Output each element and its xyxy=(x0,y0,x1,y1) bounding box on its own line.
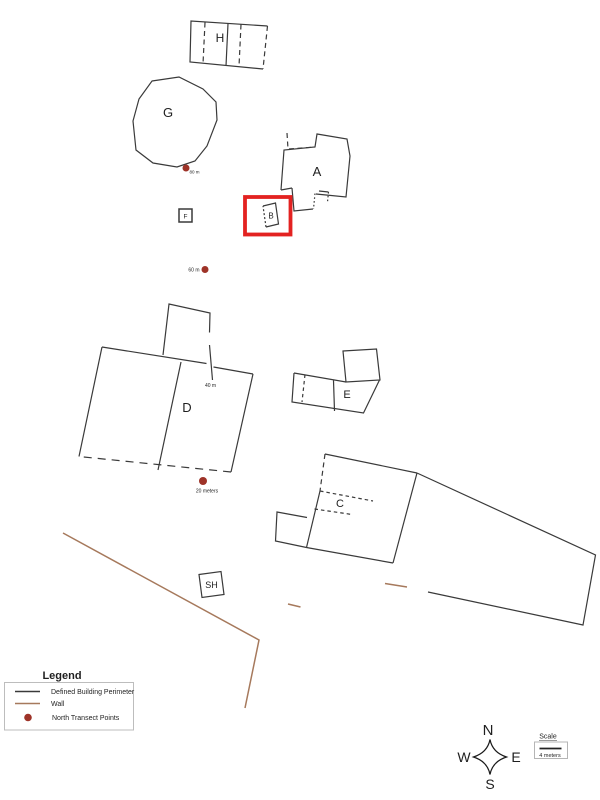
building-h-divider-dashed-east xyxy=(239,25,241,67)
building-c-east-wall xyxy=(393,473,417,563)
transect-point-20m xyxy=(199,477,207,485)
transect-label-40m: 40 m xyxy=(205,383,216,389)
transect-point-80m xyxy=(183,165,190,172)
building-d-interior-wall xyxy=(158,362,181,470)
scale-title: Scale xyxy=(539,734,557,741)
site-plan-image: H G 80 m A F B 60 m xyxy=(0,0,600,800)
building-e-north-room xyxy=(343,349,380,382)
building-e-label: E xyxy=(343,389,350,401)
building-h-east-wall-dashed xyxy=(263,26,268,69)
building-c-enclosure-outline xyxy=(417,473,596,625)
building-d-east-wall xyxy=(231,374,253,472)
building-b: B xyxy=(263,203,279,227)
building-a-stub-wall xyxy=(319,191,329,192)
legend: Legend Defined Building Perimeter Wall N… xyxy=(5,670,135,730)
building-b-dashed-wall xyxy=(263,206,266,227)
building-h-outline xyxy=(190,21,268,69)
building-c-west-wall-dashed xyxy=(320,454,325,491)
building-d: D xyxy=(79,304,253,472)
building-c-annex-outline xyxy=(276,512,308,548)
building-g-label: G xyxy=(163,105,173,120)
building-d-annex-wall-stub xyxy=(210,345,213,380)
compass-north-label: N xyxy=(483,722,494,739)
wall-segment-1 xyxy=(385,584,407,588)
transect-point-60m xyxy=(202,266,209,273)
compass-south-label: S xyxy=(485,776,494,792)
building-g-outline xyxy=(133,77,217,167)
building-c-north-wall xyxy=(325,454,417,473)
scale-bar: Scale 4 meters xyxy=(535,734,568,760)
building-d-south-wall-dashed xyxy=(79,457,231,473)
building-a-stub-dotted-wall xyxy=(328,192,329,202)
wall-segment-2 xyxy=(288,604,301,607)
site-map: H G 80 m A F B 60 m xyxy=(0,0,600,800)
transect-label-80m: 80 m xyxy=(190,170,200,175)
building-c-interior-dashed-2 xyxy=(315,509,353,515)
building-d-west-wall xyxy=(79,347,102,457)
building-h: H xyxy=(190,21,268,69)
legend-label-wall: Wall xyxy=(51,701,65,708)
compass-east-label: E xyxy=(511,749,520,765)
building-sh: SH xyxy=(199,572,224,598)
building-f-label: F xyxy=(184,214,188,221)
building-sh-label: SH xyxy=(205,580,218,590)
building-d-north-wall-east xyxy=(214,367,254,374)
legend-label-transect-points: North Transect Points xyxy=(52,715,120,722)
transect-label-20m: 20 meters xyxy=(196,489,219,495)
building-e-dashed-divider xyxy=(302,375,305,403)
building-a-south-wall xyxy=(281,188,292,190)
compass-star-icon xyxy=(474,740,507,775)
building-c-south-wall xyxy=(307,548,394,564)
long-wall xyxy=(63,533,259,708)
legend-label-building-perimeter: Defined Building Perimeter xyxy=(51,689,135,696)
legend-title: Legend xyxy=(42,670,81,682)
compass-rose: N W E S xyxy=(457,722,520,792)
building-h-divider-wall xyxy=(226,24,228,67)
building-c-label: C xyxy=(336,498,344,510)
scale-distance-label: 4 meters xyxy=(539,753,561,759)
building-b-label: B xyxy=(268,212,273,221)
building-c: C xyxy=(276,454,596,625)
building-c-west-wall xyxy=(307,491,321,548)
building-a-annex-walls xyxy=(292,188,313,211)
building-a-label: A xyxy=(313,164,322,179)
building-h-label: H xyxy=(216,31,225,45)
building-c-interior-dashed-1 xyxy=(320,491,373,501)
building-h-divider-dashed-west xyxy=(203,23,205,65)
building-e: E xyxy=(292,349,380,413)
building-e-divider-wall xyxy=(334,381,335,412)
building-a-annex-dotted-wall xyxy=(314,194,316,210)
building-d-north-wall-west xyxy=(102,347,207,364)
building-d-label: D xyxy=(182,400,191,415)
building-a-dashed-corner xyxy=(287,133,315,149)
building-f: F xyxy=(179,209,192,222)
building-e-top-wall xyxy=(294,373,346,382)
transect-label-60m: 60 m xyxy=(188,268,199,274)
legend-swatch-transect-point xyxy=(24,714,32,722)
compass-west-label: W xyxy=(457,749,471,765)
building-d-annex-outline xyxy=(163,304,210,355)
building-g: G xyxy=(133,77,217,167)
building-e-lower-outline xyxy=(292,373,380,413)
